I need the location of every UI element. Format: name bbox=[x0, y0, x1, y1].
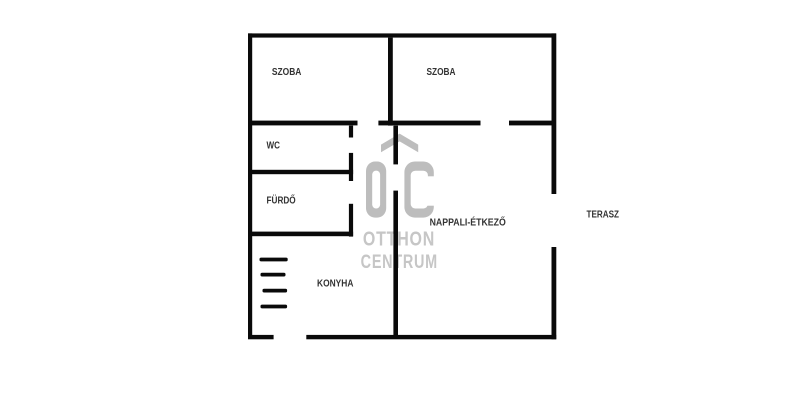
svg-text:SZOBA: SZOBA bbox=[427, 67, 456, 78]
svg-text:NAPPALI-ÉTKEZŐ: NAPPALI-ÉTKEZŐ bbox=[430, 215, 506, 228]
svg-text:CENTRUM: CENTRUM bbox=[361, 250, 438, 273]
svg-text:SZOBA: SZOBA bbox=[272, 67, 302, 78]
svg-text:TERASZ: TERASZ bbox=[587, 209, 620, 220]
svg-text:OTTHON: OTTHON bbox=[363, 227, 435, 250]
svg-text:FÜRDŐ: FÜRDŐ bbox=[267, 193, 296, 206]
svg-text:WC: WC bbox=[267, 141, 281, 152]
svg-text:KONYHA: KONYHA bbox=[317, 279, 353, 290]
